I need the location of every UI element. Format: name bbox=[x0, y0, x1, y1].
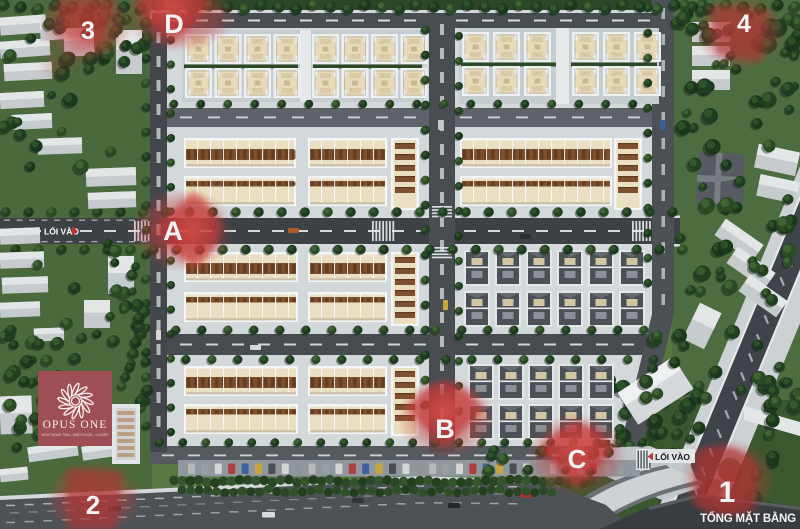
svg-text:3: 3 bbox=[81, 17, 95, 45]
svg-text:4: 4 bbox=[737, 10, 751, 38]
svg-text:A: A bbox=[163, 216, 183, 246]
svg-text:1: 1 bbox=[719, 476, 736, 509]
svg-text:TỔNG MẶT BẰNG: TỔNG MẶT BẰNG bbox=[700, 512, 796, 525]
svg-text:B: B bbox=[435, 414, 455, 444]
svg-text:2: 2 bbox=[86, 490, 100, 520]
svg-text:LỐI VÀO: LỐI VÀO bbox=[655, 451, 690, 462]
svg-text:D: D bbox=[164, 9, 184, 39]
svg-text:C: C bbox=[568, 444, 587, 474]
svg-text:OPUS ONE: OPUS ONE bbox=[43, 419, 108, 431]
svg-text:VINH THONG THAI – KING PLACE –: VINH THONG THAI – KING PLACE – LUXURY bbox=[41, 433, 109, 437]
